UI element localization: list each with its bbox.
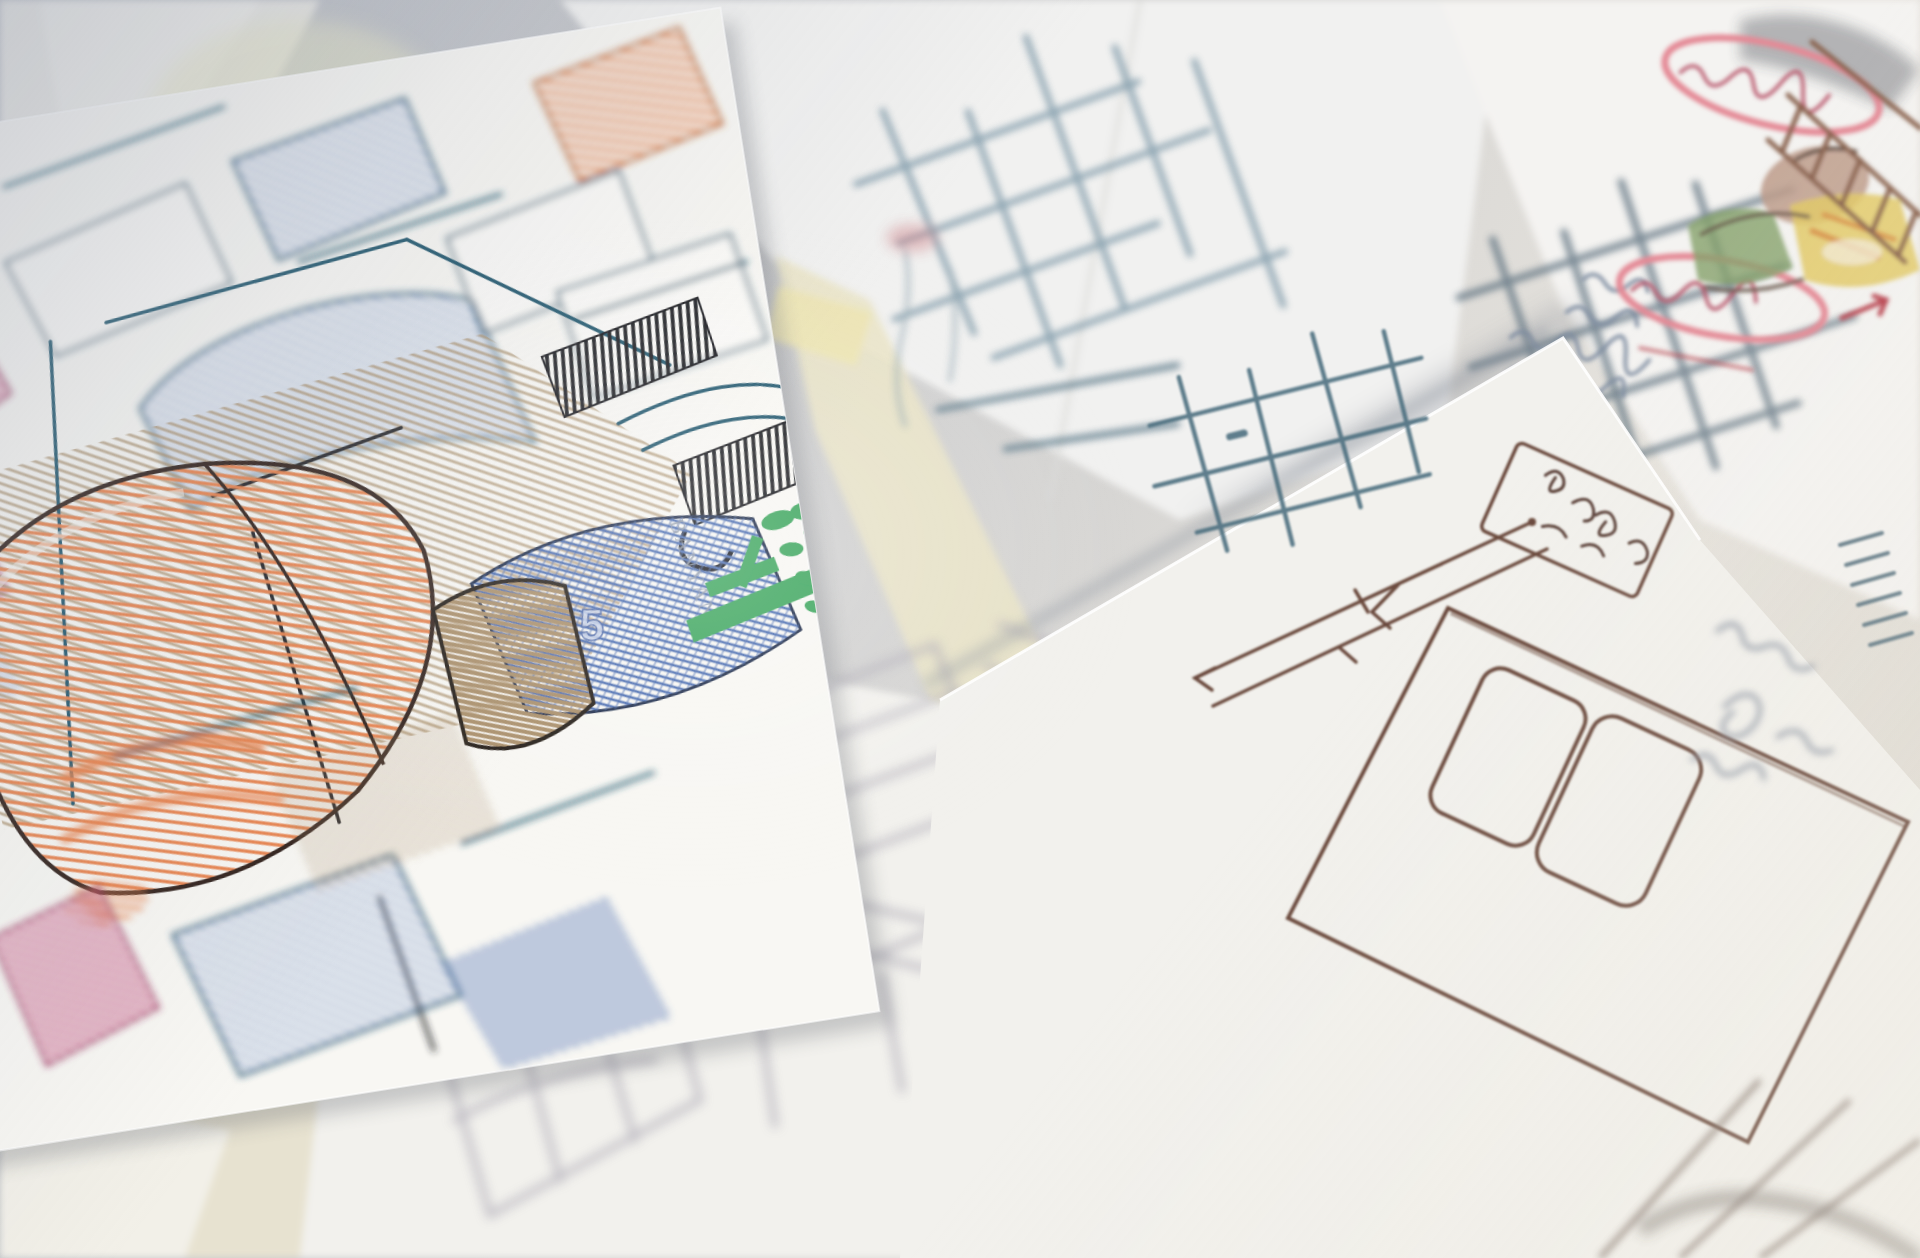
red-smudge-mark xyxy=(886,224,938,252)
photo-canvas: 5 BANYAN xyxy=(0,0,1920,1258)
sketch-number: 5 xyxy=(579,600,604,649)
sketch-photo-art: 5 BANYAN xyxy=(0,0,1920,1258)
